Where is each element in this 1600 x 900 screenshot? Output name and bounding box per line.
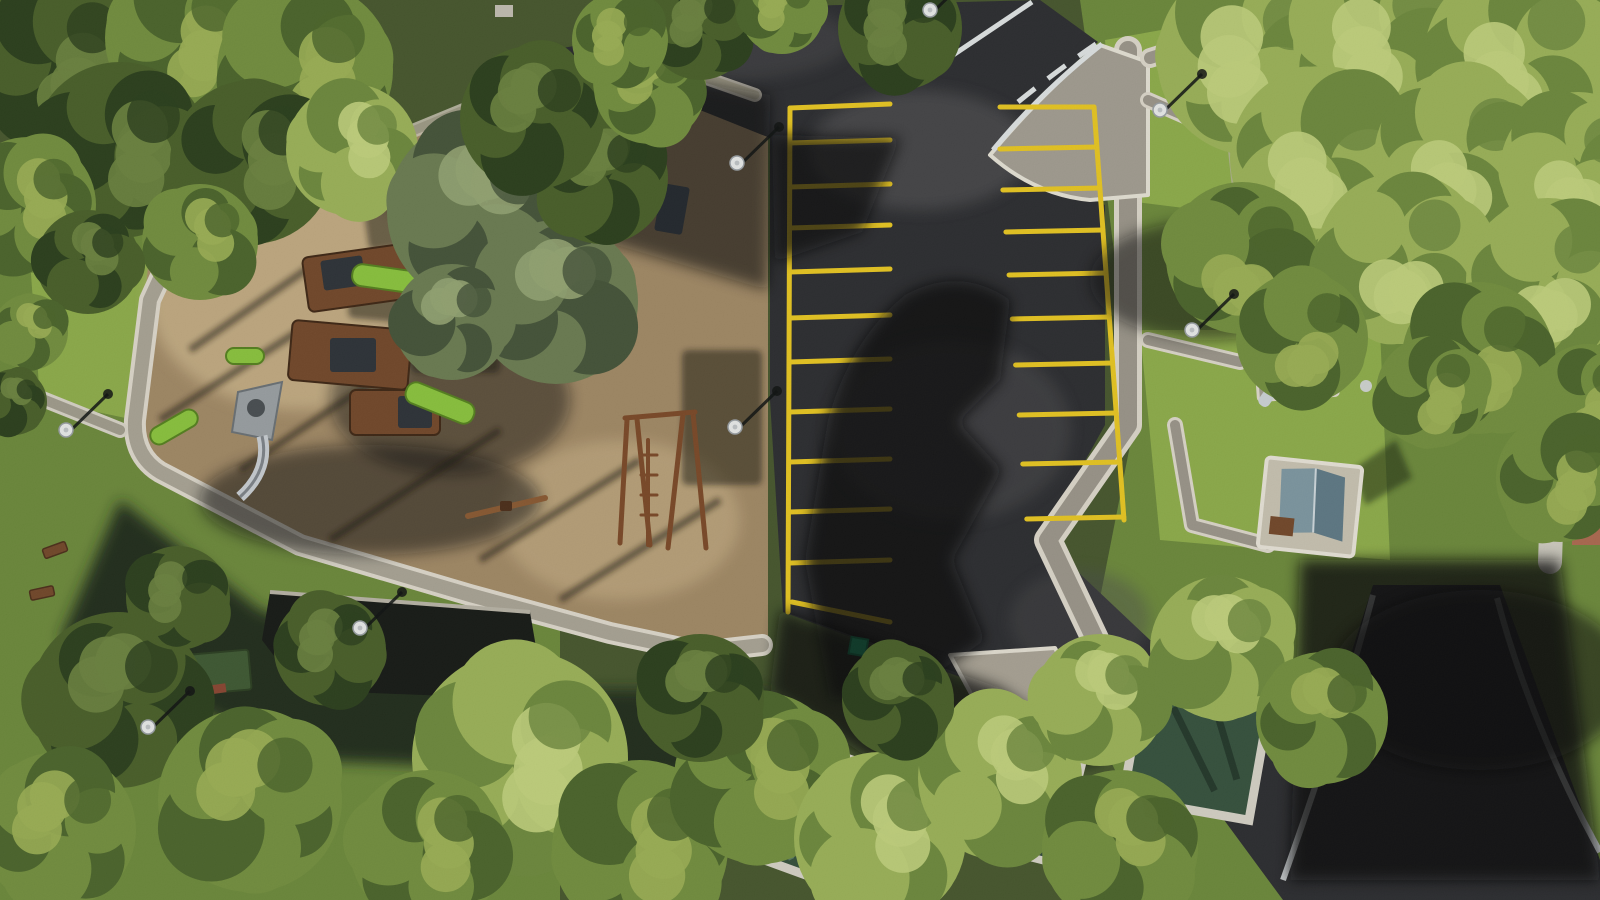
aerial-photo-canvas bbox=[0, 0, 1600, 900]
aerial-park-photo bbox=[0, 0, 1600, 900]
photo-grain bbox=[0, 0, 1600, 900]
